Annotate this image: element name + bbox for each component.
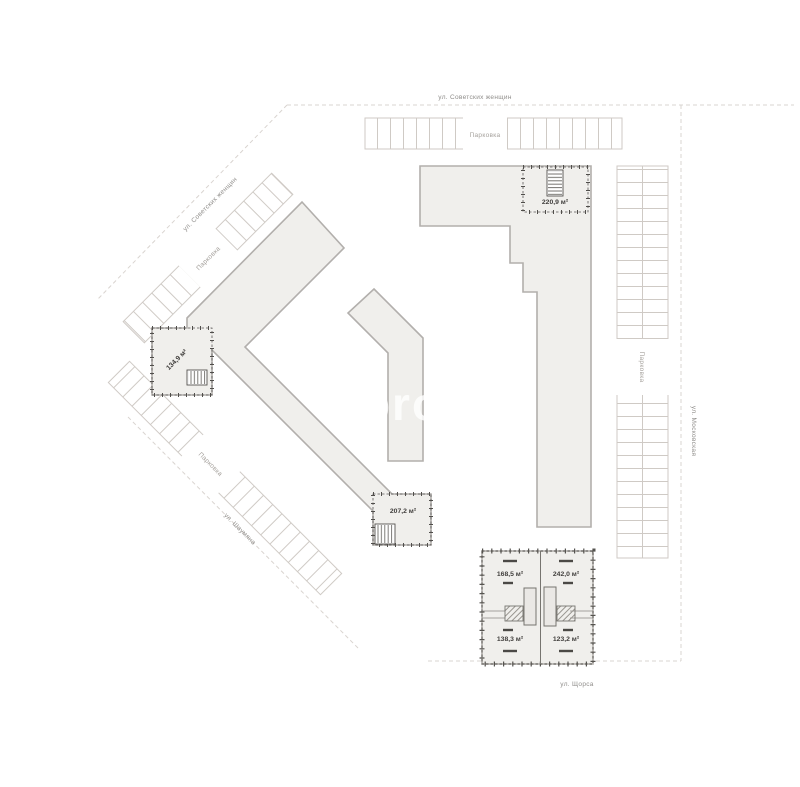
parking-label: Парковка <box>638 352 645 383</box>
street-label-right: ул. Московская <box>690 406 697 457</box>
unit-area-label: 168,5 м² <box>497 571 524 578</box>
unit-area-label: 242,0 м² <box>553 571 580 578</box>
parking-strip-bottom-left-diagonal: Парковка <box>107 360 343 596</box>
building-chevron <box>348 289 423 461</box>
parking-label: Парковка <box>470 132 501 139</box>
unit-quadrant-bottom-left[interactable]: 138,3 м² <box>497 636 524 643</box>
site-plan: ул. Советских женщин ул. Советских женщи… <box>0 0 800 787</box>
elevator-shaft-left <box>524 588 536 625</box>
unit-area-label: 220,9 м² <box>542 199 569 206</box>
unit-area-label: 138,3 м² <box>497 636 524 643</box>
building-top-right <box>420 166 591 527</box>
stairs-steps <box>548 171 562 195</box>
stairs-steps <box>376 525 394 543</box>
street-label-bottom: ул. Щорса <box>560 681 593 688</box>
stairwell-hatch-left <box>505 606 523 621</box>
watermark: pro <box>362 378 442 430</box>
stairwell-hatch-right <box>557 606 575 621</box>
stairs-steps <box>188 371 206 384</box>
unit-quadrant-bottom-right[interactable]: 123,2 м² <box>553 636 580 643</box>
street-label-top: ул. Советских женщин <box>438 94 512 101</box>
unit-area-label: 207,2 м² <box>390 508 417 515</box>
unit-quadrant-top-left[interactable]: 168,5 м² <box>497 571 524 578</box>
unit-quadrant-top-right[interactable]: 242,0 м² <box>553 571 580 578</box>
parking-strip-top: Парковка <box>365 116 622 151</box>
parking-strip-right: Парковка <box>615 166 670 558</box>
elevator-shaft-right <box>544 587 556 626</box>
building-bottom-square <box>482 551 593 664</box>
unit-area-label: 123,2 м² <box>553 636 580 643</box>
